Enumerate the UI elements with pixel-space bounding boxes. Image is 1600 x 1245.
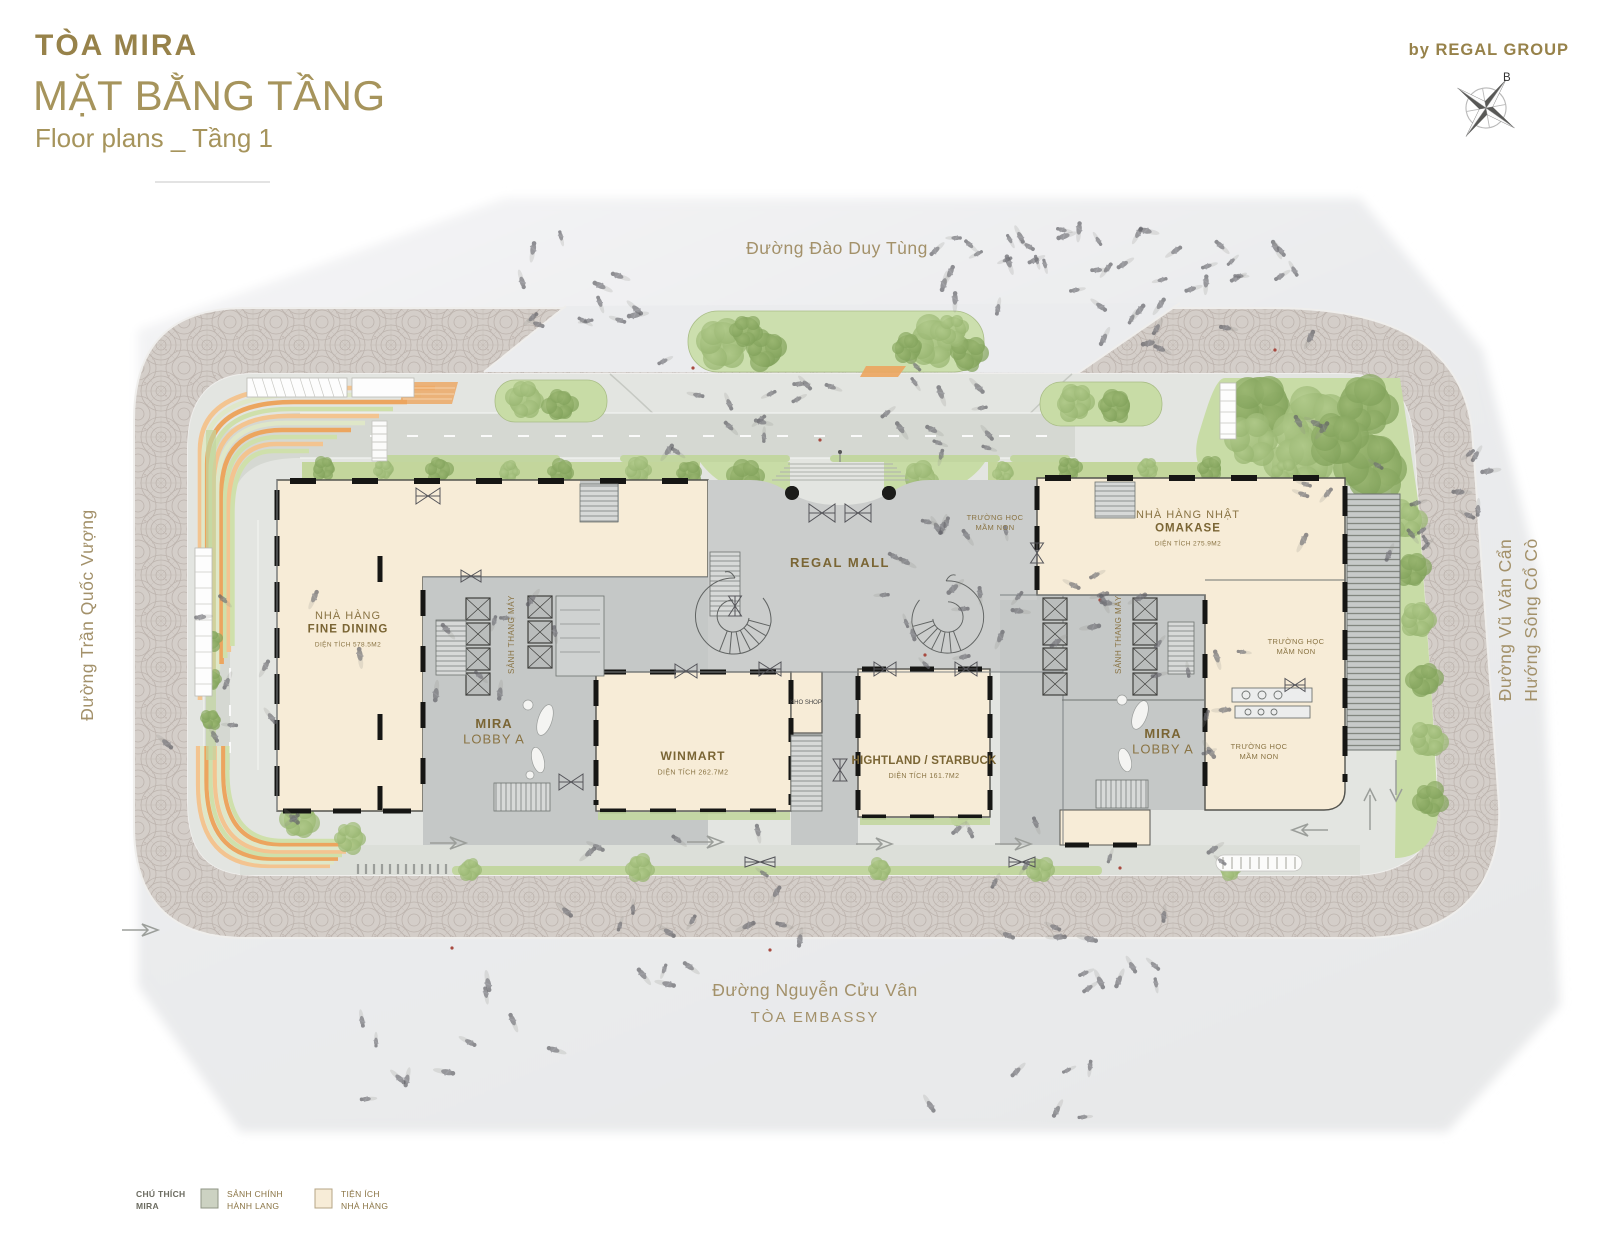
svg-text:SẢNH CHÍNH: SẢNH CHÍNH: [227, 1188, 283, 1199]
svg-text:KHO SHOP: KHO SHOP: [790, 700, 822, 706]
svg-text:FINE DINING: FINE DINING: [308, 623, 389, 635]
svg-text:MẶT BẰNG TẦNG: MẶT BẰNG TẦNG: [33, 72, 386, 119]
svg-text:NHÀ HÀNG NHẬT: NHÀ HÀNG NHẬT: [1136, 508, 1240, 521]
svg-text:MIRA: MIRA: [136, 1201, 159, 1211]
svg-text:TÒA EMBASSY: TÒA EMBASSY: [751, 1009, 880, 1026]
svg-text:SẢNH THANG MÁY: SẢNH THANG MÁY: [1114, 595, 1123, 674]
svg-text:DIỆN TÍCH 578.5M2: DIỆN TÍCH 578.5M2: [315, 639, 381, 648]
svg-text:HIGHTLAND / STARBUCK: HIGHTLAND / STARBUCK: [852, 755, 997, 767]
svg-text:DIỆN TÍCH 275.9M2: DIỆN TÍCH 275.9M2: [1155, 538, 1221, 547]
svg-text:TRƯỜNG HỌC: TRƯỜNG HỌC: [967, 513, 1024, 522]
svg-text:DIỆN TÍCH 262.7M2: DIỆN TÍCH 262.7M2: [658, 767, 729, 776]
svg-text:MIRA: MIRA: [475, 716, 512, 731]
svg-text:TRƯỜNG HỌC: TRƯỜNG HỌC: [1231, 742, 1288, 751]
svg-text:CHÚ THÍCH: CHÚ THÍCH: [136, 1188, 185, 1199]
svg-text:MẦM NON: MẦM NON: [1239, 751, 1278, 761]
svg-text:OMAKASE: OMAKASE: [1155, 522, 1221, 534]
svg-text:LOBBY A: LOBBY A: [1132, 742, 1194, 757]
svg-text:TRƯỜNG HỌC: TRƯỜNG HỌC: [1268, 637, 1325, 646]
svg-text:DIỆN TÍCH 161.7M2: DIỆN TÍCH 161.7M2: [889, 771, 960, 780]
svg-text:NHÀ HÀNG: NHÀ HÀNG: [341, 1201, 388, 1211]
svg-text:Đường Trần Quốc Vượng: Đường Trần Quốc Vượng: [77, 509, 97, 721]
svg-text:TÒA MIRA: TÒA MIRA: [35, 28, 198, 62]
svg-text:Đường Đào Duy Tùng: Đường Đào Duy Tùng: [746, 238, 928, 258]
svg-text:Đường Nguyễn Cửu Vân: Đường Nguyễn Cửu Vân: [712, 979, 917, 1000]
svg-text:Hướng Sông Cổ Cò: Hướng Sông Cổ Cò: [1521, 538, 1541, 702]
svg-text:NHÀ HÀNG: NHÀ HÀNG: [315, 609, 381, 622]
svg-text:MIRA: MIRA: [1144, 726, 1181, 741]
svg-text:HÀNH LANG: HÀNH LANG: [227, 1201, 279, 1211]
svg-text:MẦM NON: MẦM NON: [975, 522, 1014, 532]
svg-text:Đường Vũ Văn Cẩn: Đường Vũ Văn Cẩn: [1495, 539, 1515, 702]
svg-text:REGAL MALL: REGAL MALL: [790, 555, 890, 570]
svg-text:B: B: [1503, 72, 1511, 84]
svg-text:MẦM NON: MẦM NON: [1276, 646, 1315, 656]
svg-text:SẢNH THANG MÁY: SẢNH THANG MÁY: [507, 595, 516, 674]
svg-text:Floor plans _ Tầng 1: Floor plans _ Tầng 1: [35, 123, 273, 153]
svg-text:TIỆN ÍCH: TIỆN ÍCH: [341, 1189, 380, 1199]
svg-text:LOBBY A: LOBBY A: [463, 732, 525, 747]
svg-text:by REGAL GROUP: by REGAL GROUP: [1409, 41, 1569, 59]
svg-text:WINMART: WINMART: [661, 749, 726, 763]
